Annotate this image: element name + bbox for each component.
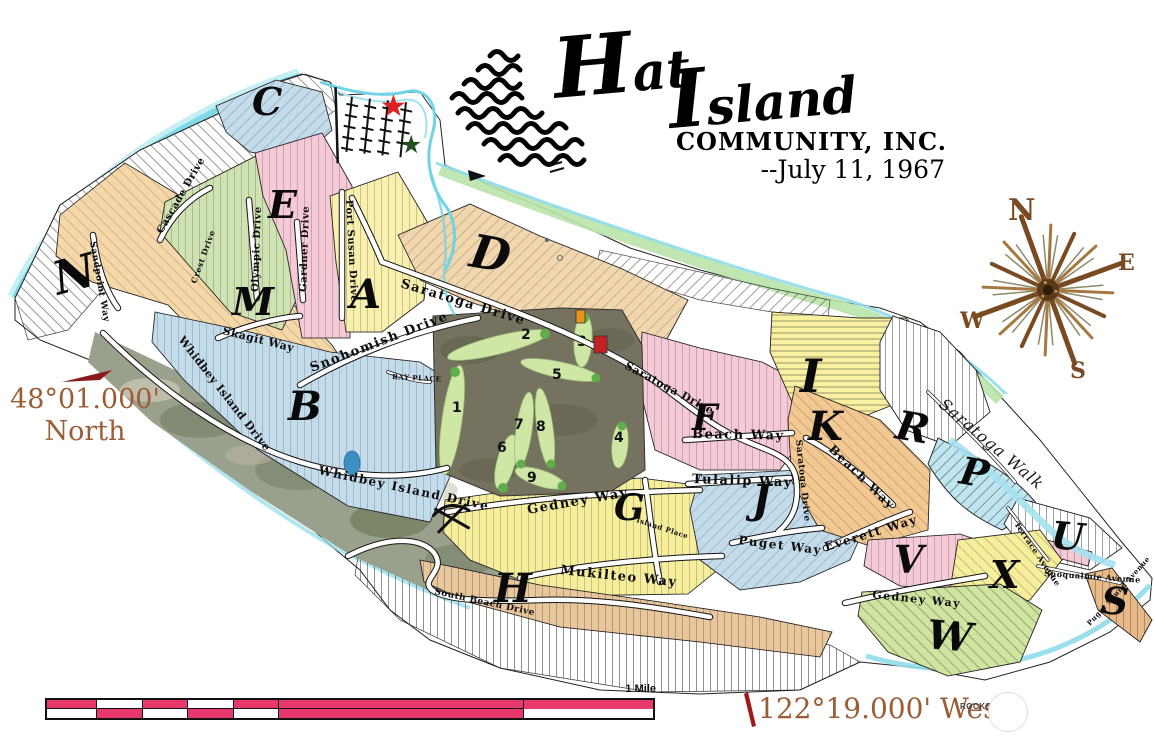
hole-8: 8 — [536, 419, 546, 435]
compass-n-label: N — [1008, 193, 1035, 228]
hole-2: 2 — [521, 327, 531, 343]
section-letter-k: K — [807, 403, 845, 450]
orange-building — [576, 310, 585, 323]
section-letter-v: V — [894, 537, 927, 582]
hole-7: 7 — [514, 417, 524, 433]
hole-9: 9 — [527, 470, 537, 486]
compass-rose: N E S W — [948, 190, 1148, 390]
latitude-word: North — [10, 416, 160, 448]
section-letter-b: B — [287, 383, 322, 430]
latitude-label: 48°01.000' North — [10, 384, 160, 449]
compass-s-label: S — [1070, 358, 1086, 384]
red-building — [594, 336, 607, 353]
street-label-beach-way-1: Beach Way — [692, 427, 785, 444]
compass-w-label: W — [959, 308, 985, 334]
hole-6: 6 — [497, 440, 507, 456]
compass-e-label: E — [1118, 250, 1135, 276]
rocks-label: ROCKS — [960, 702, 991, 711]
golf-course: 1 2 3 4 5 6 7 8 9 — [433, 308, 645, 496]
hole-5: 5 — [552, 367, 562, 383]
section-letter-i: I — [798, 349, 823, 403]
map-page: 1 2 3 4 5 6 7 8 9 — [0, 0, 1155, 742]
section-letter-x: X — [988, 552, 1021, 597]
red-star-icon: ★ — [380, 89, 407, 124]
title-word-island: Island — [665, 44, 860, 140]
small-dot — [545, 238, 549, 242]
organization-name: COMMUNITY, INC. — [676, 127, 947, 156]
section-letter-e: E — [267, 182, 298, 227]
latitude-value: 48°01.000' — [10, 384, 160, 416]
scale-bar-top-row — [47, 700, 653, 709]
scale-bar-bottom-row — [47, 709, 653, 718]
section-letter-w: W — [925, 611, 978, 662]
scale-mile-label: 1 Mile — [596, 683, 656, 695]
hole-4: 4 — [614, 430, 624, 446]
scale-bar — [45, 698, 655, 720]
section-letter-c: C — [252, 79, 282, 124]
green-star-icon: ★ — [400, 130, 422, 159]
hole-1: 1 — [452, 400, 462, 416]
rocks-circle-icon — [988, 692, 1028, 732]
map-date: --July 11, 1967 — [761, 155, 945, 184]
